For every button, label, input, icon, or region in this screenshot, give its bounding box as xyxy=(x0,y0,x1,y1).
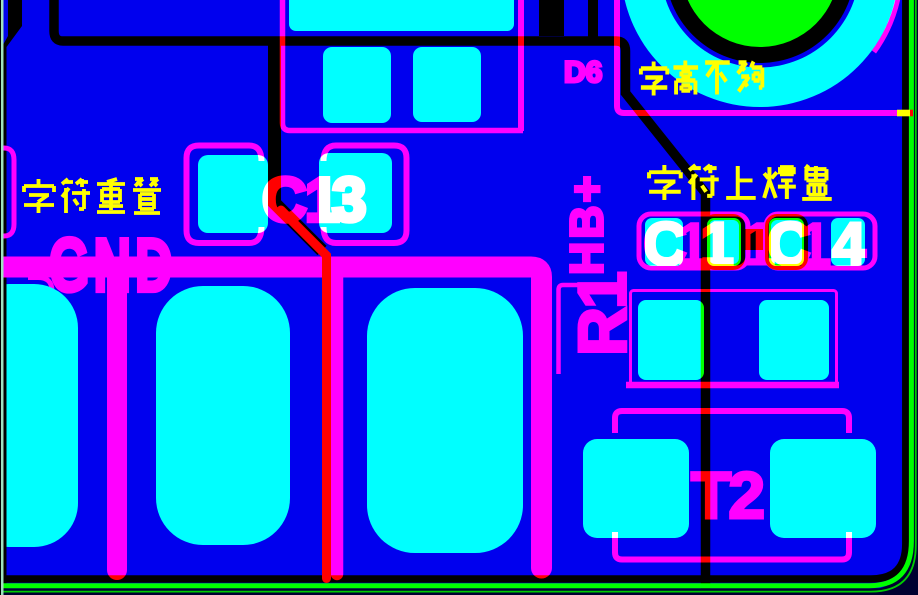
svg-text:R1: R1 xyxy=(565,273,641,356)
svg-text:HB+: HB+ xyxy=(561,173,613,275)
svg-text:D6: D6 xyxy=(564,56,602,89)
svg-text:4: 4 xyxy=(832,210,866,278)
svg-text:3: 3 xyxy=(332,166,366,235)
svg-text:GND: GND xyxy=(49,222,177,307)
